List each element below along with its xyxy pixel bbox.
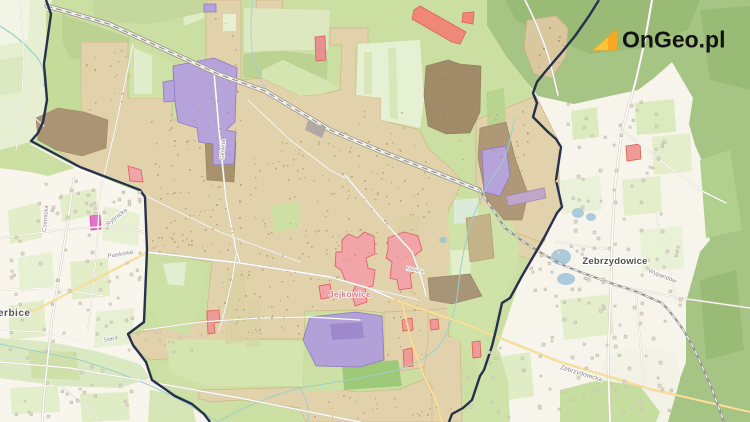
svg-text:Główna: Główna xyxy=(220,139,227,160)
svg-text:OnGeo.pl: OnGeo.pl xyxy=(622,27,726,53)
svg-text:Jejkowice: Jejkowice xyxy=(329,289,371,299)
svg-text:Zebrzydowice: Zebrzydowice xyxy=(582,256,647,267)
svg-text:erbice: erbice xyxy=(0,308,30,319)
